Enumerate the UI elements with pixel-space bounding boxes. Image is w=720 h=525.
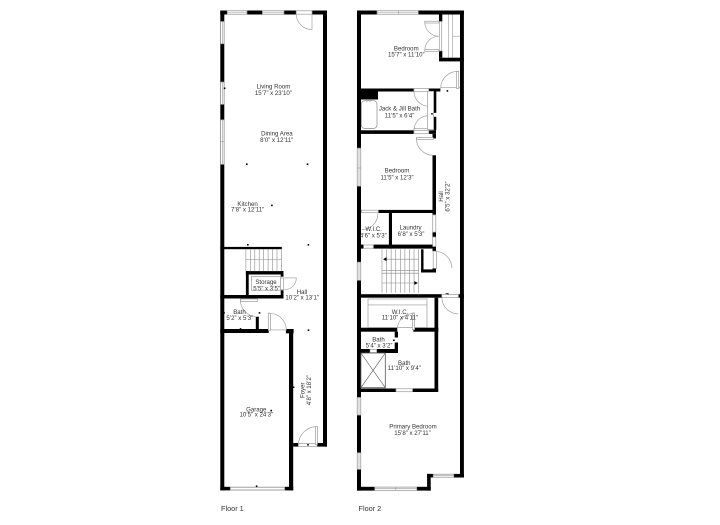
svg-text:6’8” x 5’3”: 6’8” x 5’3”	[398, 231, 425, 238]
svg-text:Jack & Jill Bath: Jack & Jill Bath	[379, 105, 420, 112]
svg-text:11’10” x 9’4”: 11’10” x 9’4”	[388, 365, 421, 372]
svg-text:11’5” x 12’3”: 11’5” x 12’3”	[380, 174, 413, 181]
svg-text:6’5” x 32’2”: 6’5” x 32’2”	[445, 181, 452, 211]
svg-text:10’5” x 24’3”: 10’5” x 24’3”	[240, 412, 274, 419]
svg-text:15’7” x 23’10”: 15’7” x 23’10”	[255, 90, 292, 97]
svg-text:4’8” x 18’2”: 4’8” x 18’2”	[306, 375, 313, 405]
svg-text:8’0” x 12’11”: 8’0” x 12’11”	[260, 137, 293, 144]
svg-text:Floor 2: Floor 2	[359, 504, 382, 513]
svg-text:5’2” x 5’3”: 5’2” x 5’3”	[226, 315, 253, 322]
svg-text:5’5” x 3’5”: 5’5” x 3’5”	[253, 286, 280, 293]
svg-text:15’7” x 11’10”: 15’7” x 11’10”	[388, 51, 424, 58]
svg-text:7’8” x 12’11”: 7’8” x 12’11”	[231, 207, 264, 214]
svg-text:11’10” x 4’11”: 11’10” x 4’11”	[382, 315, 418, 322]
svg-text:Floor 1: Floor 1	[221, 504, 244, 513]
svg-text:15’8” x 27’11”: 15’8” x 27’11”	[394, 430, 430, 437]
svg-text:Bedroom: Bedroom	[385, 167, 410, 174]
svg-text:5’4” x 3’2”: 5’4” x 3’2”	[366, 343, 393, 350]
svg-text:4’6” x 5’3”: 4’6” x 5’3”	[360, 233, 387, 240]
svg-text:11’5” x 6’4”: 11’5” x 6’4”	[385, 112, 415, 119]
svg-text:10’2” x 13’1”: 10’2” x 13’1”	[285, 295, 319, 302]
